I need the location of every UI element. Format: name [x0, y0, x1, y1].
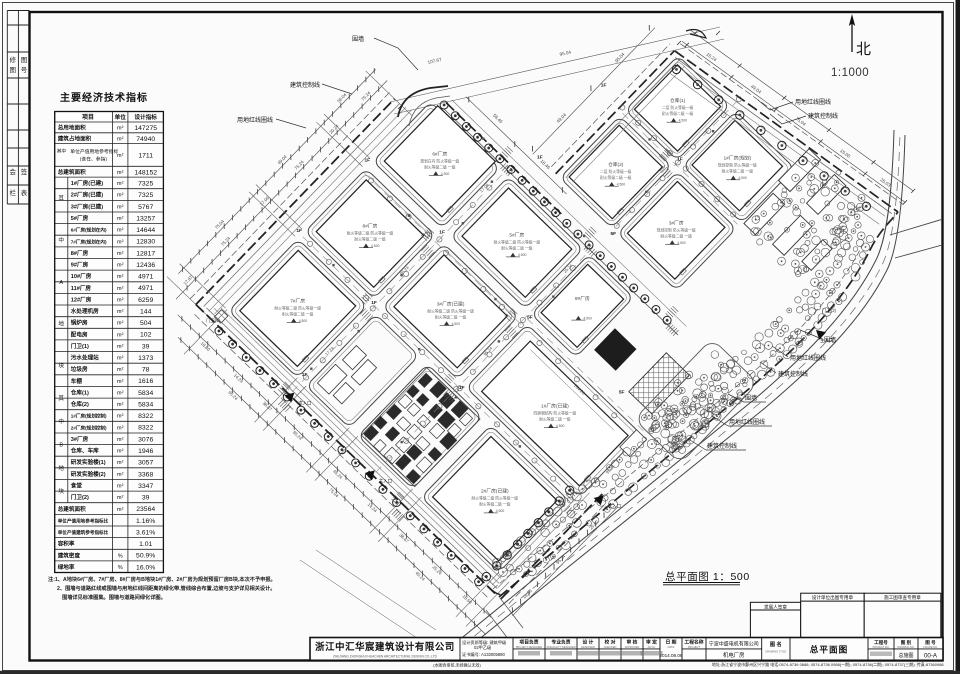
svg-text:日 期: 日 期 [666, 639, 677, 646]
svg-text:A: A [59, 280, 63, 286]
svg-text:2#厂房(已建): 2#厂房(已建) [71, 191, 103, 199]
svg-text:4.500: 4.500 [496, 509, 505, 513]
svg-text:容积率: 容积率 [58, 540, 75, 548]
svg-text:m²: m² [117, 309, 124, 315]
svg-text:校 对: 校 对 [605, 639, 616, 646]
svg-text:耐火等级二级 一级: 耐火等级二级 一级 [660, 233, 692, 238]
svg-text:耐火等级二级 防火等级一级: 耐火等级二级 防火等级一级 [274, 305, 321, 310]
svg-text:研发实验楼(1): 研发实验楼(1) [71, 458, 106, 466]
svg-text:m²: m² [117, 251, 124, 257]
svg-text:6259: 6259 [138, 297, 153, 304]
svg-text:工程号: 工程号 [874, 639, 888, 646]
svg-text:图 名: 图 名 [770, 640, 782, 648]
svg-text:总建筑面积: 总建筑面积 [58, 505, 86, 513]
svg-text:(本图含审核,未经确认无效): (本图含审核,未经确认无效) [433, 662, 481, 668]
svg-text:144: 144 [140, 308, 152, 315]
svg-text:9#厂房: 9#厂房 [71, 261, 89, 269]
svg-text:中: 中 [58, 236, 64, 244]
svg-text:11#厂房: 11#厂房 [71, 284, 92, 292]
svg-text:图 别: 图 别 [901, 639, 912, 646]
svg-text:39: 39 [142, 495, 150, 502]
svg-text:耐火等级二级 防火等级一级: 耐火等级二级 防火等级一级 [347, 231, 394, 236]
svg-text:2、围墙与道路红线或围墙与用地红线间距离的绿化带,管线综合布: 2、围墙与道路红线或围墙与用地红线间距离的绿化带,管线综合布置,边坡与支护详见相… [57, 584, 275, 592]
svg-text:审 核: 审 核 [627, 639, 638, 646]
svg-text:总施图: 总施图 [898, 652, 913, 659]
svg-text:(含在、参指): (含在、参指) [80, 156, 108, 163]
svg-text:1F: 1F [371, 300, 377, 306]
svg-text:1F: 1F [302, 372, 308, 378]
svg-text:m²: m² [117, 402, 124, 408]
svg-text:5834: 5834 [138, 402, 153, 409]
svg-text:m²: m² [117, 126, 124, 132]
svg-text:门卫(2): 门卫(2) [822, 307, 837, 314]
svg-text:7325: 7325 [138, 181, 153, 188]
svg-text:4.500: 4.500 [452, 322, 461, 326]
svg-text:504: 504 [140, 320, 152, 327]
svg-text:16.0%: 16.0% [136, 564, 155, 571]
svg-text:专业负责: 专业负责 [551, 639, 570, 646]
svg-text:m²: m² [117, 414, 124, 420]
svg-text:AUTH.: AUTH. [648, 645, 656, 649]
svg-text:6#厂房: 6#厂房 [432, 150, 447, 157]
svg-text:5F: 5F [611, 231, 617, 237]
svg-text:主要经济技术指标: 主要经济技术指标 [60, 91, 148, 104]
svg-text:1#厂房(规划控制): 1#厂房(规划控制) [71, 413, 107, 420]
svg-text:号: 号 [21, 66, 28, 74]
svg-text:发展人签章: 发展人签章 [764, 603, 787, 610]
svg-text:4.500: 4.500 [556, 424, 565, 428]
svg-text:1F: 1F [677, 156, 683, 162]
svg-text:二层 防火等级一级: 二层 防火等级一级 [662, 105, 694, 110]
svg-text:5F: 5F [527, 315, 533, 321]
svg-text:13257: 13257 [136, 215, 155, 222]
svg-text:建筑控制线: 建筑控制线 [808, 112, 838, 120]
svg-text:7#厂房: 7#厂房 [290, 297, 305, 304]
svg-text:m²: m² [117, 181, 124, 187]
svg-text:表: 表 [21, 188, 28, 197]
svg-text:1#厂房(规划): 1#厂房(规划) [723, 155, 751, 162]
svg-text:%: % [118, 553, 123, 559]
svg-text:PROJECT DESIGNER: PROJECT DESIGNER [516, 645, 542, 649]
svg-text:施工图审查专用章: 施工图审查专用章 [884, 594, 921, 601]
svg-text:ZHEJIANG ZHONGHUI HUACHEN ARCH: ZHEJIANG ZHONGHUI HUACHEN ARCHITECTURAL … [333, 655, 438, 659]
svg-text:耐火等级二级 防火等级一级: 耐火等级二级 防火等级一级 [471, 496, 518, 501]
svg-text:仓库、车库: 仓库、车库 [70, 447, 99, 455]
svg-text:5834: 5834 [138, 390, 153, 397]
svg-text:块: 块 [58, 487, 64, 495]
svg-text:4.500: 4.500 [617, 183, 626, 187]
svg-text:设计指标: 设计指标 [135, 113, 158, 121]
svg-text:m²: m² [117, 263, 124, 269]
svg-text:仓库(1): 仓库(1) [70, 389, 89, 397]
svg-text:4.500: 4.500 [299, 319, 308, 323]
svg-text:2#厂房(已建): 2#厂房(已建) [481, 488, 509, 495]
svg-text:中: 中 [58, 417, 64, 425]
svg-text:m²: m² [117, 170, 124, 176]
svg-text:耐火等级二级 一级: 耐火等级二级 一级 [501, 246, 533, 251]
svg-text:用地红线圈线: 用地红线圈线 [729, 418, 765, 426]
svg-text:四跨钢结构 防火等级一级: 四跨钢结构 防火等级一级 [533, 411, 576, 416]
svg-text:配电房: 配电房 [71, 330, 88, 338]
svg-text:图: 图 [21, 56, 28, 64]
svg-text:3#厂房: 3#厂房 [669, 219, 684, 226]
svg-text:规划控制 防火等级一级: 规划控制 防火等级一级 [657, 227, 696, 232]
svg-text:%: % [118, 565, 123, 571]
svg-text:证书编号: A133005890: 证书编号: A133005890 [462, 651, 506, 658]
svg-text:修: 修 [10, 55, 17, 64]
svg-text:7325: 7325 [138, 192, 153, 199]
svg-text:耐火等级二级 防火等级一级: 耐火等级二级 防火等级一级 [494, 240, 541, 245]
svg-text:1.16%: 1.16% [136, 518, 155, 525]
svg-text:建筑密度: 建筑密度 [57, 551, 81, 559]
svg-text:DRAWING TITLE: DRAWING TITLE [765, 650, 786, 654]
svg-text:4.500: 4.500 [738, 176, 747, 180]
svg-text:m²: m² [117, 297, 124, 303]
svg-text:102: 102 [140, 332, 152, 339]
svg-text:78: 78 [142, 367, 150, 374]
svg-text:主入口: 主入口 [820, 337, 833, 343]
svg-text:耐火等级二级 一级: 耐火等级二级 一级 [424, 164, 456, 169]
svg-text:3#厂房: 3#厂房 [71, 435, 89, 443]
svg-text:CHECKED: CHECKED [604, 645, 617, 649]
svg-text:门卫(1): 门卫(1) [206, 317, 221, 324]
svg-text:7#厂房(规划在内): 7#厂房(规划在内) [71, 238, 107, 245]
svg-text:门卫(2): 门卫(2) [71, 493, 89, 501]
svg-text:m²: m² [117, 274, 124, 280]
svg-text:规划控制 防火等级一级: 规划控制 防火等级一级 [718, 163, 757, 168]
svg-text:地址:浙江省宁波市鄞州区兴宁路 电话:0574-8736: 地址:浙江省宁波市鄞州区兴宁路 电话:0574-8736 0688; 0574-… [712, 661, 944, 667]
svg-text:耐火等级二级 一级: 耐火等级二级 一级 [435, 314, 467, 319]
svg-text:总建筑面积: 总建筑面积 [58, 168, 86, 176]
svg-text:12#厂房: 12#厂房 [71, 295, 92, 303]
svg-text:4971: 4971 [138, 274, 153, 281]
svg-text:m²: m² [117, 495, 124, 501]
svg-text:耐火等级二级 防火等级一级: 耐火等级二级 防火等级一级 [427, 308, 474, 313]
svg-text:其: 其 [58, 194, 64, 202]
svg-text:地: 地 [58, 464, 64, 472]
svg-text:12436: 12436 [136, 262, 155, 269]
svg-text:DESIGNED: DESIGNED [581, 645, 595, 649]
svg-text:8#厂房: 8#厂房 [363, 223, 378, 230]
svg-text:注:1、A地块6#厂房、7#厂房、8#厂房与B地块1#厂房、: 注:1、A地块6#厂房、7#厂房、8#厂房与B地块1#厂房、2#厂房为规划预留厂… [48, 575, 276, 583]
svg-text:5#厂房: 5#厂房 [71, 214, 89, 222]
svg-text:建筑占地面积: 建筑占地面积 [57, 134, 92, 142]
svg-text:8322: 8322 [138, 425, 153, 432]
svg-text:1F: 1F [296, 228, 302, 234]
svg-text:建筑控制线: 建筑控制线 [290, 81, 320, 89]
svg-text:工程名称: 工程名称 [684, 639, 703, 646]
svg-text:m²: m² [117, 425, 124, 431]
svg-text:1946: 1946 [138, 448, 153, 455]
svg-text:1373: 1373 [138, 355, 153, 362]
svg-text:3057: 3057 [138, 460, 153, 467]
svg-text:8322: 8322 [138, 413, 153, 420]
svg-text:建筑控制线: 建筑控制线 [778, 370, 808, 378]
svg-text:围墙详见标准图集。围墙与道路间绿化详图。: 围墙详见标准图集。围墙与道路间绿化详图。 [62, 593, 166, 601]
svg-text:m²: m² [117, 228, 124, 234]
svg-text:围墙: 围墙 [352, 35, 364, 43]
svg-text:m²: m² [117, 321, 124, 327]
svg-text:地: 地 [58, 320, 64, 328]
svg-text:图: 图 [10, 66, 17, 74]
svg-text:1F: 1F [365, 158, 371, 164]
svg-text:耐火等级二级 一级: 耐火等级二级 一级 [539, 417, 571, 422]
svg-text:PROJECT: PROJECT [688, 645, 701, 649]
svg-text:m²: m² [117, 391, 124, 397]
svg-text:50.9%: 50.9% [136, 553, 155, 560]
svg-text:m²: m² [117, 216, 124, 222]
svg-text:次入口: 次入口 [298, 400, 311, 407]
svg-text:宁波中盛电机有限公司: 宁波中盛电机有限公司 [709, 641, 759, 648]
svg-text:10#厂房: 10#厂房 [71, 272, 92, 280]
svg-text:FIGURE NO.: FIGURE NO. [923, 646, 938, 649]
svg-text:仓库(1): 仓库(1) [670, 97, 686, 104]
svg-text:耐火等级二级 一级: 耐火等级二级 一级 [479, 502, 511, 507]
svg-text:其: 其 [58, 394, 64, 402]
svg-text:B: B [59, 443, 63, 449]
svg-text:建筑控制线: 建筑控制线 [707, 442, 737, 450]
svg-text:m²: m² [117, 460, 124, 466]
svg-text:PROJECT NO.: PROJECT NO. [873, 646, 890, 649]
svg-text:签: 签 [21, 167, 28, 176]
svg-text:3#厂房(已建): 3#厂房(已建) [437, 300, 465, 307]
svg-text:DRAWING NO.: DRAWING NO. [897, 646, 914, 649]
svg-text:总平面图: 总平面图 [810, 644, 848, 655]
svg-text:污水处理站: 污水处理站 [71, 354, 99, 362]
svg-text:主入口: 主入口 [379, 477, 392, 483]
svg-text:规划在内 防火等级一级: 规划在内 防火等级一级 [420, 158, 459, 163]
svg-text:6#厂房(规划在内): 6#厂房(规划在内) [71, 227, 107, 234]
svg-text:9#厂房: 9#厂房 [575, 295, 590, 302]
svg-text:耐火等级二级 一级: 耐火等级二级 一级 [722, 169, 754, 174]
svg-text:m²: m² [117, 153, 124, 159]
svg-text:总用地面积: 总用地面积 [58, 124, 86, 132]
svg-text:2#厂房(规划控制): 2#厂房(规划控制) [71, 424, 107, 431]
svg-text:单位产值用地参考指标: 单位产值用地参考指标 [70, 148, 118, 155]
svg-text:1#厂房(已建): 1#厂房(已建) [71, 179, 103, 187]
svg-text:浙江中汇华宸建筑设计有限公司: 浙江中汇华宸建筑设计有限公司 [315, 641, 455, 652]
svg-text:5#厂房: 5#厂房 [509, 232, 524, 239]
svg-text:仓库(2): 仓库(2) [70, 400, 89, 408]
svg-text:1F: 1F [459, 385, 465, 391]
svg-text:m²: m² [117, 286, 124, 292]
svg-text:会: 会 [10, 167, 17, 176]
svg-text:项目负责: 项目负责 [519, 639, 538, 646]
svg-text:39: 39 [142, 343, 150, 350]
svg-text:4.500: 4.500 [518, 253, 527, 257]
svg-text:1711: 1711 [138, 153, 153, 160]
svg-text:1#厂房(已建): 1#厂房(已建) [541, 403, 569, 410]
svg-text:图 号: 图 号 [925, 639, 936, 646]
svg-text:次入口: 次入口 [608, 502, 621, 509]
svg-text:用地红线圈线: 用地红线圈线 [790, 354, 826, 362]
svg-text:1F: 1F [537, 155, 543, 161]
svg-text:m²: m² [117, 332, 124, 338]
svg-text:m²: m² [117, 484, 124, 490]
svg-text:4971: 4971 [138, 285, 153, 292]
svg-text:3.61%: 3.61% [136, 529, 155, 536]
svg-text:12817: 12817 [136, 250, 155, 257]
svg-text:单位: 单位 [115, 113, 127, 121]
svg-text:单位产值用地参考指标比: 单位产值用地参考指标比 [58, 517, 109, 524]
svg-text:APPROVED: APPROVED [625, 645, 640, 649]
svg-text:1616: 1616 [138, 378, 153, 385]
svg-text:设 计: 设 计 [583, 639, 594, 646]
svg-text:垃圾房: 垃圾房 [71, 365, 88, 373]
svg-text:m²: m² [117, 344, 124, 350]
svg-text:门卫(1): 门卫(1) [71, 342, 89, 350]
svg-text:总平面图 1：500: 总平面图 1：500 [665, 570, 750, 583]
svg-text:4.500: 4.500 [679, 119, 688, 123]
svg-text:围墙: 围墙 [745, 394, 757, 402]
svg-text:3#厂房(已建): 3#厂房(已建) [71, 202, 103, 210]
svg-text:块: 块 [58, 362, 64, 370]
svg-text:3347: 3347 [138, 483, 153, 490]
svg-text:1F: 1F [439, 230, 445, 236]
svg-text:m²: m² [117, 204, 124, 210]
svg-text:二层 防火等级一级: 二层 防火等级一级 [600, 169, 632, 174]
svg-text:m²: m² [117, 239, 124, 245]
svg-text:4.500: 4.500 [583, 316, 592, 320]
svg-text:3076: 3076 [138, 436, 153, 443]
svg-text:用地红线圈线: 用地红线圈线 [795, 98, 831, 106]
svg-text:5F: 5F [619, 389, 625, 395]
svg-text:用地红线圈线: 用地红线圈线 [237, 116, 273, 124]
svg-text:02甲乙级: 02甲乙级 [474, 644, 492, 651]
svg-text:DATE: DATE [668, 645, 675, 649]
svg-text:m²: m² [117, 449, 124, 455]
svg-text:机电厂房: 机电厂房 [723, 651, 745, 659]
svg-text:1:1000: 1:1000 [831, 67, 869, 79]
svg-text:4.500: 4.500 [677, 241, 686, 245]
svg-text:m²: m² [117, 437, 124, 443]
svg-text:水处理机房: 水处理机房 [70, 307, 99, 315]
svg-text:北: 北 [856, 41, 871, 58]
svg-text:m²: m² [117, 136, 124, 142]
svg-text:审 定: 审 定 [646, 639, 657, 646]
svg-text:单位产值建筑参考指标比: 单位产值建筑参考指标比 [58, 529, 109, 536]
svg-text:m²: m² [117, 367, 124, 373]
svg-text:74940: 74940 [136, 136, 155, 143]
svg-text:m²: m² [117, 472, 124, 478]
svg-text:项目: 项目 [82, 113, 94, 121]
svg-text:1.01: 1.01 [139, 541, 152, 548]
svg-text:12830: 12830 [136, 239, 155, 246]
svg-text:SPECIALITY DESIGNER: SPECIALITY DESIGNER [546, 645, 575, 649]
svg-text:m²: m² [117, 379, 124, 385]
svg-text:00-A: 00-A [924, 653, 938, 660]
svg-text:锅炉房: 锅炉房 [71, 319, 88, 327]
svg-text:4.500: 4.500 [441, 172, 450, 176]
svg-text:5767: 5767 [138, 204, 153, 211]
svg-text:4.500: 4.500 [371, 244, 380, 248]
svg-text:仓库(2): 仓库(2) [608, 161, 624, 168]
svg-text:栏: 栏 [10, 188, 17, 197]
svg-text:耐火等级二级 一级: 耐火等级二级 一级 [354, 237, 386, 242]
svg-text:14644: 14644 [136, 227, 155, 234]
svg-text:23564: 23564 [136, 506, 155, 513]
svg-text:m²: m² [117, 193, 124, 199]
svg-text:绿地率: 绿地率 [58, 563, 75, 571]
svg-text:设计单位出图专用章: 设计单位出图专用章 [812, 594, 854, 601]
svg-text:m²: m² [117, 356, 124, 362]
svg-text:耐火等级二级 一级: 耐火等级二级 一级 [662, 111, 694, 116]
svg-text:147275: 147275 [134, 125, 157, 132]
svg-text:车棚: 车棚 [71, 377, 83, 385]
svg-text:研发实验楼(2): 研发实验楼(2) [71, 470, 106, 478]
svg-text:食堂: 食堂 [70, 482, 83, 490]
svg-text:1F: 1F [601, 83, 607, 89]
svg-text:2014.09.06: 2014.09.06 [660, 653, 683, 658]
svg-text:耐火等级二级 一级: 耐火等级二级 一级 [282, 311, 314, 316]
svg-text:8#厂房: 8#厂房 [71, 249, 89, 257]
svg-text:耐火等级二级 一级: 耐火等级二级 一级 [600, 175, 632, 180]
svg-text:3368: 3368 [138, 471, 153, 478]
svg-text:148152: 148152 [134, 169, 157, 176]
svg-text:其中: 其中 [57, 148, 67, 155]
svg-text:m²: m² [117, 507, 124, 513]
